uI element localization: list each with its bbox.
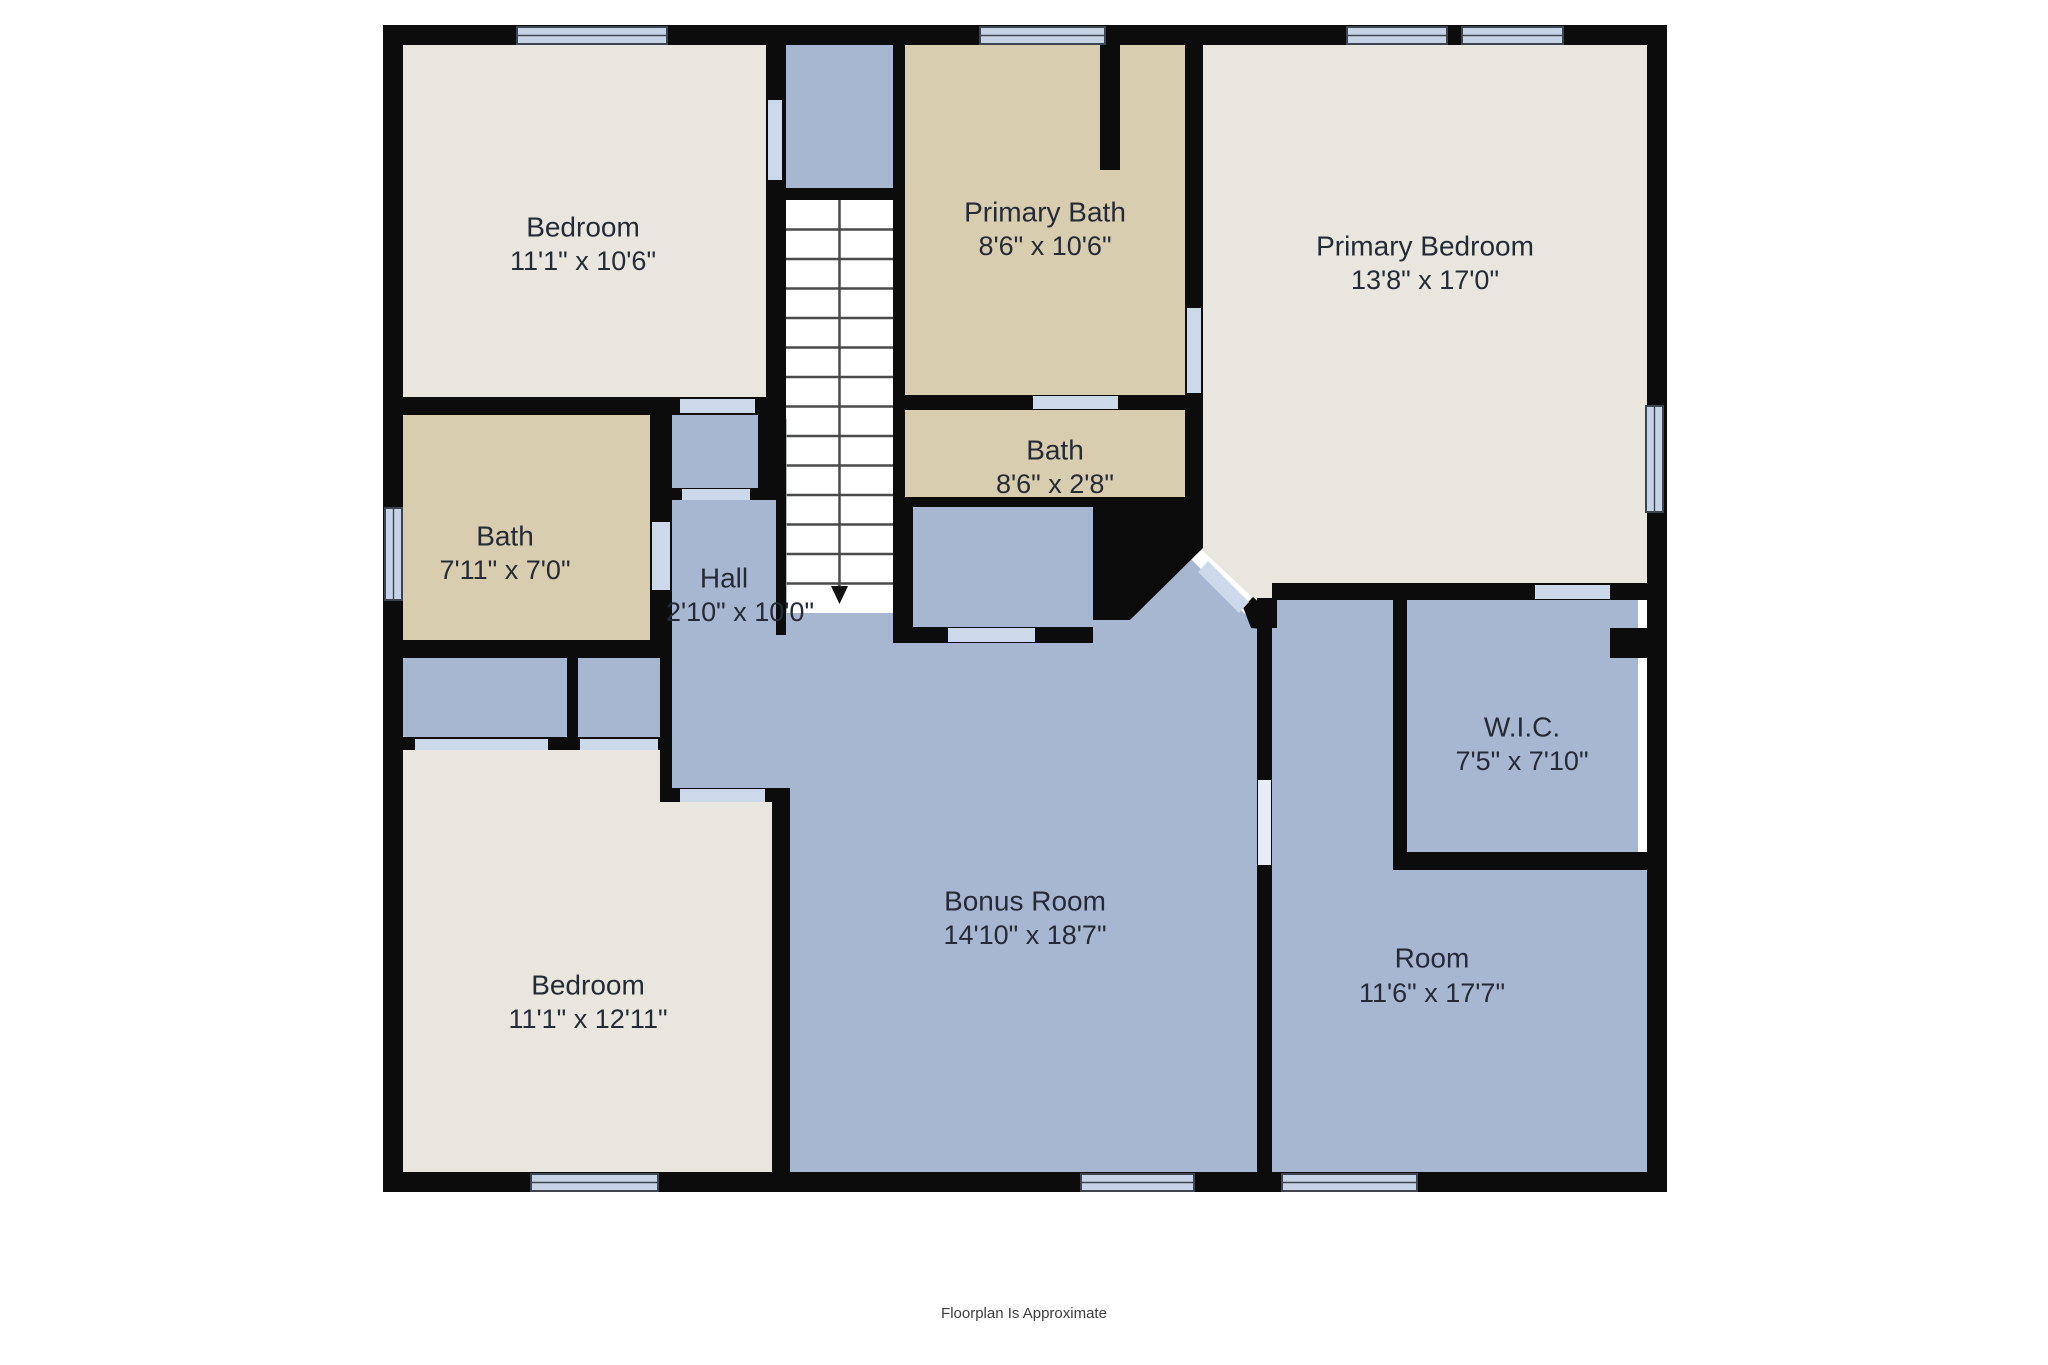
wall-wic-notch bbox=[1610, 628, 1648, 658]
wall-alcove-left bbox=[902, 507, 913, 643]
floor-closet-b bbox=[578, 658, 660, 737]
staircase bbox=[777, 200, 893, 613]
floor-stair-landing bbox=[786, 45, 893, 188]
footer-disclaimer: Floorplan Is Approximate bbox=[941, 1305, 1107, 1322]
room-label-bonus-room: Bonus Room bbox=[944, 885, 1106, 916]
room-dims-wic: 7'5" x 7'10" bbox=[1455, 746, 1588, 776]
floor-hall bbox=[672, 500, 776, 788]
door-closet-a bbox=[415, 739, 548, 750]
room-label-wic: W.I.C. bbox=[1484, 711, 1560, 742]
room-dims-bath-small: 8'6" x 2'8" bbox=[996, 469, 1114, 499]
floor-room-upper bbox=[1272, 600, 1393, 870]
door-bonus-room-passage bbox=[1258, 780, 1271, 865]
room-label-primary-bedroom: Primary Bedroom bbox=[1316, 230, 1534, 261]
room-label-room: Room bbox=[1395, 942, 1470, 973]
room-dims-bedroom-top-left: 11'1" x 10'6" bbox=[510, 246, 656, 276]
door-vestibule-hall bbox=[682, 489, 750, 500]
wall-vestibule-right bbox=[758, 415, 776, 500]
room-dims-bath: 7'11" x 7'0" bbox=[439, 555, 570, 585]
room-label-bath-small: Bath bbox=[1026, 434, 1084, 465]
room-label-bedroom-top-left: Bedroom bbox=[526, 211, 640, 242]
door-wic bbox=[1535, 585, 1610, 599]
floor-closet-a bbox=[403, 658, 567, 737]
wall-closets-right bbox=[660, 658, 672, 802]
room-label-primary-bath: Primary Bath bbox=[964, 196, 1126, 227]
wall-landing-separator bbox=[786, 188, 893, 200]
door-bedroomtl-vestibule bbox=[680, 399, 755, 413]
wall-primarybath-stub bbox=[1100, 45, 1120, 170]
wall-bath-bottom bbox=[383, 640, 672, 658]
floor-bedroom-bottom-left bbox=[403, 750, 772, 1172]
room-label-hall: Hall bbox=[700, 562, 748, 593]
floor-room-lower bbox=[1272, 870, 1647, 1172]
room-dims-hall: 2'10" x 10'0" bbox=[666, 597, 814, 627]
wall-room-left bbox=[1257, 618, 1272, 1172]
floor-alcove-closet bbox=[913, 507, 1093, 627]
room-label-bath: Bath bbox=[476, 520, 534, 551]
door-closet-b bbox=[580, 739, 658, 750]
floorplan-page: Bedroom11'1" x 10'6"Primary Bath8'6" x 1… bbox=[0, 0, 2048, 1365]
floor-vestibule-closet bbox=[672, 415, 758, 488]
room-label-bedroom-bottom-left: Bedroom bbox=[531, 969, 645, 1000]
floor-bonus-room bbox=[776, 558, 1257, 1172]
room-dims-room: 11'6" x 17'7" bbox=[1359, 978, 1505, 1008]
wall-primarybath-right bbox=[1185, 45, 1203, 507]
room-dims-bedroom-bottom-left: 11'1" x 12'11" bbox=[508, 1004, 667, 1034]
wall-closets-divider bbox=[567, 658, 578, 737]
room-dims-primary-bedroom: 13'8" x 17'0" bbox=[1351, 265, 1499, 295]
door-bedroombl bbox=[680, 789, 765, 802]
wall-bedroombl-right bbox=[772, 802, 790, 1172]
wall-outer-right bbox=[1647, 25, 1667, 1192]
wall-wic-left bbox=[1393, 583, 1407, 870]
room-dims-bonus-room: 14'10" x 18'7" bbox=[943, 920, 1106, 950]
floor-primary-bedroom bbox=[1203, 45, 1647, 618]
wall-wic-bottom bbox=[1393, 852, 1648, 870]
door-primarybath-east bbox=[1187, 308, 1201, 393]
floorplan-drawing: Bedroom11'1" x 10'6"Primary Bath8'6" x 1… bbox=[0, 0, 2048, 1365]
door-alcove bbox=[948, 628, 1035, 642]
room-dims-primary-bath: 8'6" x 10'6" bbox=[978, 231, 1111, 261]
door-bedroomtl-landing bbox=[768, 100, 782, 180]
door-primarybath-south bbox=[1033, 396, 1118, 409]
door-bath bbox=[652, 522, 670, 590]
wall-outer-left bbox=[383, 25, 403, 1192]
